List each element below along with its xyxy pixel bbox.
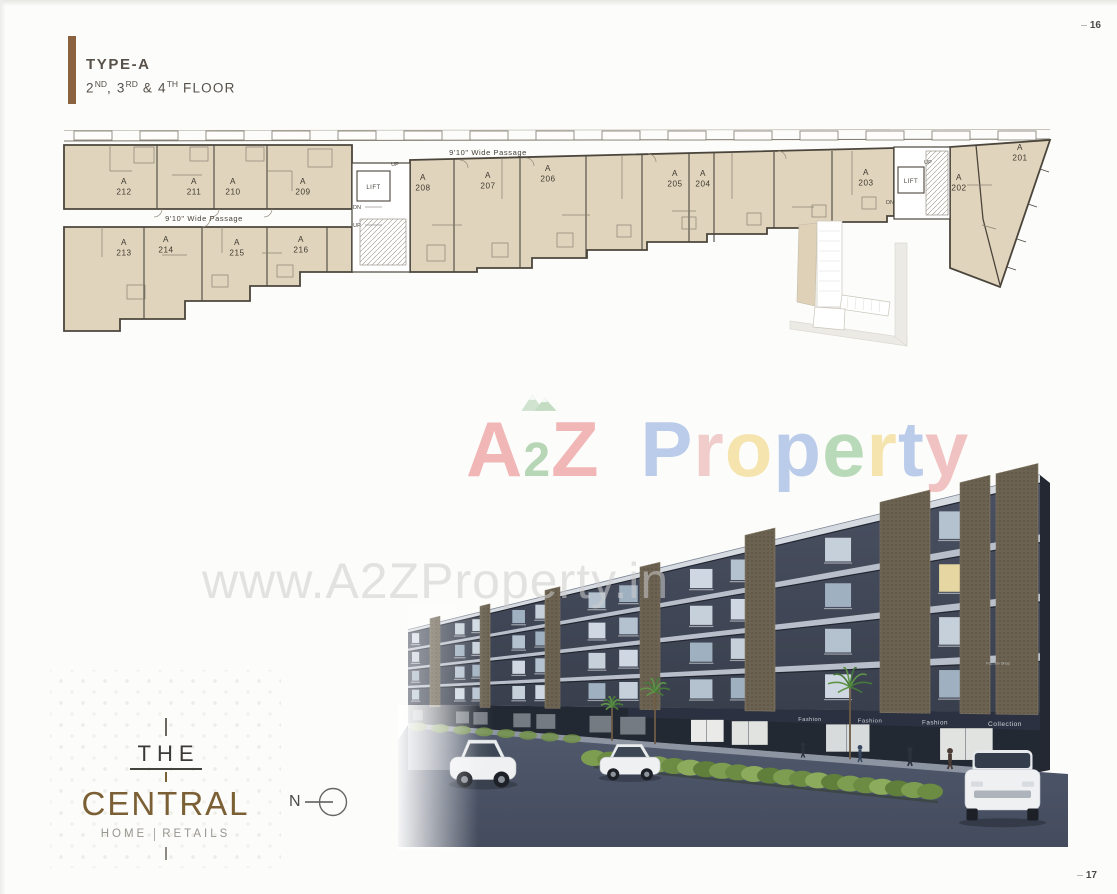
building-render: FashionFashionFashionCollectionFashion S…	[398, 455, 1068, 850]
logo-tagline: HOME RETAILS	[101, 828, 231, 841]
building-side	[1040, 475, 1050, 772]
stair-direction-label: DN	[353, 205, 361, 211]
logo-retails: RETAILS	[162, 828, 230, 840]
storefront	[691, 720, 724, 742]
logo-the: THE	[130, 739, 202, 770]
logo-tick-top	[165, 718, 167, 736]
scan-edge-shadow-top	[0, 0, 1117, 6]
stairs	[360, 219, 406, 265]
watermark-letter: t	[898, 405, 925, 493]
upper-shop-sign: Fashion Shop	[986, 661, 1009, 665]
window	[825, 538, 851, 562]
shop-sign: Fashion	[798, 717, 821, 723]
header-accent-bar	[68, 36, 76, 104]
window	[690, 643, 712, 662]
logo-tick-bottom	[165, 847, 167, 860]
storefront	[732, 721, 768, 745]
shop-sign: Fashion	[858, 719, 882, 725]
floor-subtitle: 2ND, 3RD & 4TH FLOOR	[86, 79, 236, 96]
watermark-url: www.A2ZProperty.in	[202, 552, 669, 610]
stair-direction-label: UP	[924, 160, 932, 166]
window	[690, 679, 712, 698]
north-label: N	[289, 793, 301, 811]
watermark-letter: p	[773, 405, 822, 493]
watermark-brand: A2Z Property	[466, 404, 969, 495]
watermark-letter: o	[725, 405, 774, 493]
north-indicator: N	[283, 779, 361, 831]
window	[619, 618, 638, 635]
watermark-letter: y	[925, 405, 969, 493]
site-key-plan	[790, 221, 907, 346]
window	[589, 653, 606, 669]
plan-balcony-strip	[64, 130, 1050, 142]
window	[690, 569, 712, 588]
window	[619, 650, 638, 667]
watermark-letter: r	[693, 405, 724, 493]
stair-core-left	[352, 163, 410, 272]
window	[825, 583, 851, 607]
watermark-letter: r	[866, 405, 897, 493]
logo-tagline-divider	[154, 828, 155, 841]
passage-label: 9'10" Wide Passage	[165, 214, 243, 223]
watermark-letter: Z	[551, 405, 600, 493]
floor-plan: A201A202A203A204A205A206A207A208A209A210…	[62, 125, 1062, 355]
hedge-bush	[917, 784, 943, 800]
stair-direction-label: DN	[886, 200, 894, 206]
page-number-bottom: 17	[1077, 870, 1097, 881]
stair-core-right	[894, 147, 950, 219]
window	[589, 683, 606, 699]
page-number-top: 16	[1081, 20, 1101, 31]
window	[690, 606, 712, 625]
lift-label: LIFT	[366, 185, 380, 191]
lift-label: LIFT	[904, 179, 918, 185]
brochure-page: TYPE-A 2ND, 3RD & 4TH FLOOR	[0, 0, 1117, 894]
logo-tick-mid	[165, 772, 167, 782]
window	[512, 686, 525, 699]
logo-central: CENTRAL	[81, 785, 249, 823]
stair-direction-label: UP	[391, 162, 399, 168]
watermark-letter	[600, 405, 641, 493]
page-title: TYPE-A	[86, 56, 151, 73]
watermark-letter: P	[640, 405, 693, 493]
mountain-peaks-icon	[520, 390, 558, 412]
watermark-letter: e	[822, 405, 866, 493]
window	[825, 674, 851, 698]
brand-logo: THE CENTRAL HOME RETAILS	[58, 678, 273, 860]
storefront	[826, 724, 869, 751]
stair-direction-label: UP	[353, 223, 361, 229]
shop-sign: Fashion	[922, 719, 948, 726]
window	[619, 682, 638, 699]
scan-edge-shadow-left	[0, 0, 6, 894]
window	[512, 661, 525, 674]
logo-home: HOME	[101, 828, 148, 840]
window	[589, 623, 606, 639]
window	[825, 629, 851, 653]
window	[512, 610, 525, 623]
passage-label: 9'10" Wide Passage	[449, 148, 527, 157]
watermark-letter: 2	[523, 434, 551, 487]
window	[512, 635, 525, 648]
shop-sign: Collection	[988, 721, 1022, 728]
watermark-letter: A	[466, 405, 523, 493]
